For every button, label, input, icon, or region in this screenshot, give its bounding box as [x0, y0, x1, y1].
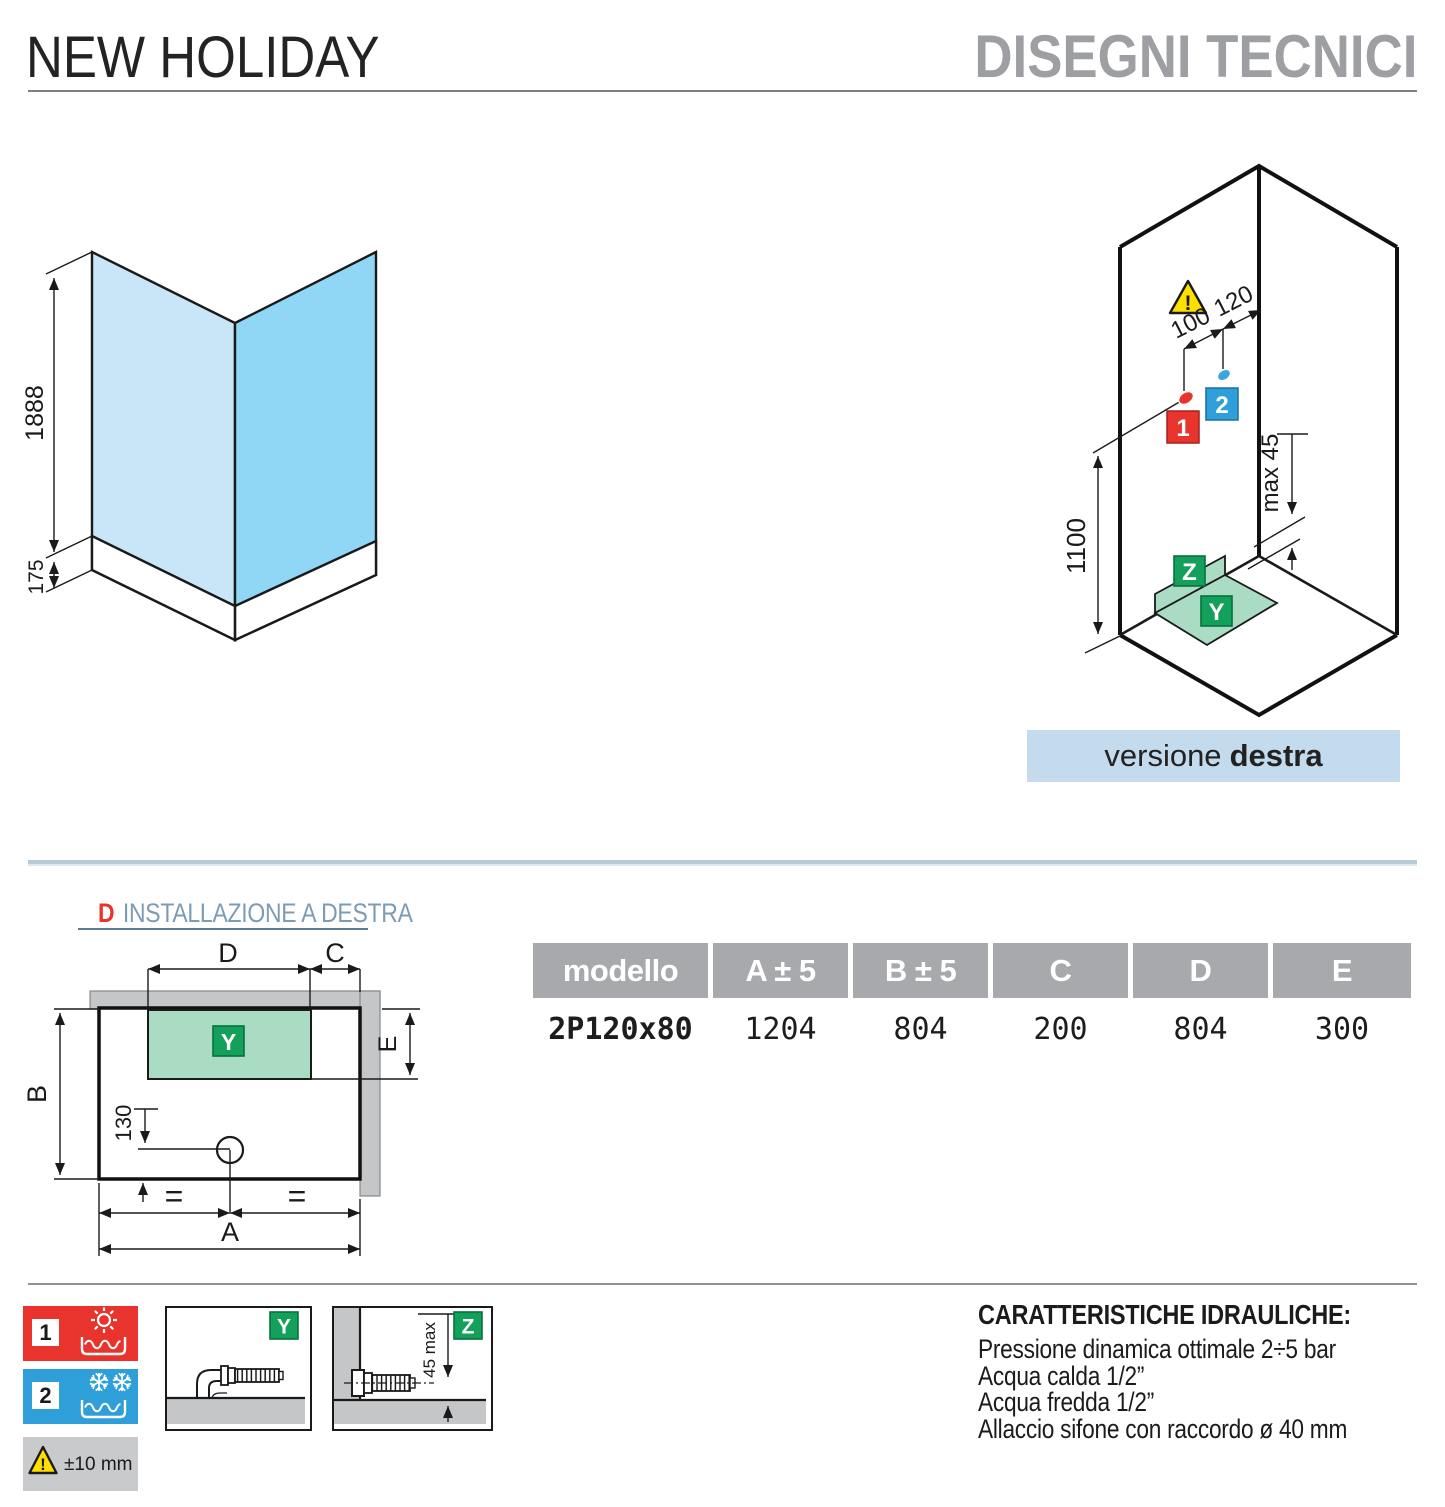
- table-cell-e: 300: [1273, 1011, 1411, 1047]
- detail-box-y: Y: [165, 1306, 312, 1431]
- svg-text:2: 2: [39, 1383, 51, 1408]
- cold-water-basin-icon: [82, 1400, 125, 1417]
- equal-mark-right: =: [288, 1178, 307, 1214]
- glass-panels: [92, 252, 376, 640]
- technical-sheet-page: NEW HOLIDAY DISEGNI TECNICI 1888 175: [0, 0, 1445, 1507]
- corner-glass-drawing: 1888 175: [20, 148, 490, 710]
- svg-text:!: !: [40, 1455, 46, 1474]
- svg-text:2: 2: [1215, 392, 1228, 419]
- dim-label-175: 175: [25, 559, 48, 594]
- dim-label-1888: 1888: [21, 385, 49, 441]
- installation-title-text: INSTALLAZIONE A DESTRA: [123, 898, 413, 928]
- cold-water-dot: [1215, 367, 1232, 383]
- hydraulic-spec-line: Pressione dinamica ottimale 2÷5 bar: [978, 1336, 1445, 1363]
- dim-label-130: 130: [111, 1105, 136, 1142]
- dimension-1888: 1888: [21, 252, 92, 558]
- svg-text:Z: Z: [1182, 559, 1197, 586]
- footer-divider: [28, 1283, 1417, 1285]
- section-title: DISEGNI TECNICI: [974, 22, 1417, 91]
- hydraulic-spec-line: Acqua fredda 1/2”: [978, 1389, 1445, 1416]
- page-title: NEW HOLIDAY: [26, 24, 380, 91]
- table-header-modello: modello: [533, 943, 708, 998]
- isometric-cabin-drawing: ! 100 120 1 2 1100: [1020, 148, 1445, 740]
- drain-badge-group: Z: [1174, 556, 1205, 586]
- table-header-c: C: [993, 943, 1128, 998]
- dim-label-120: 120: [1210, 280, 1258, 322]
- warning-icon-small: !: [30, 1447, 57, 1474]
- hot-water-point: 1: [1093, 389, 1199, 453]
- dim-label-45max: 45 max: [420, 1322, 439, 1378]
- table-cell-b: 804: [853, 1011, 988, 1047]
- legend-tolerance: ! ±10 mm: [23, 1437, 138, 1491]
- table-cell-c: 200: [993, 1011, 1128, 1047]
- floor-band: [167, 1398, 305, 1424]
- installation-title: DINSTALLAZIONE A DESTRA: [98, 898, 413, 929]
- table-cell-d: 804: [1133, 1011, 1268, 1047]
- table-header-b: B ± 5: [853, 943, 988, 998]
- dimensions-table-header: modello A ± 5 B ± 5 C D E: [533, 943, 1413, 998]
- svg-text:Y: Y: [277, 1316, 291, 1339]
- tray-badge-group: Y: [1201, 596, 1232, 626]
- version-variant: destra: [1230, 738, 1323, 774]
- svg-text:1: 1: [39, 1320, 51, 1345]
- dim-label-A: A: [221, 1217, 239, 1247]
- floor-band: [334, 1400, 486, 1424]
- table-cell-model: 2P120x80: [533, 1011, 708, 1047]
- dim-label-D: D: [218, 938, 238, 968]
- detail-box-z: 45 max Z: [332, 1306, 493, 1431]
- legend-hot-water: 1: [23, 1306, 138, 1361]
- svg-text:Z: Z: [462, 1316, 475, 1339]
- dim-label-B: B: [22, 1085, 52, 1103]
- installation-letter: D: [98, 898, 114, 928]
- table-header-a: A ± 5: [713, 943, 848, 998]
- header-divider: [28, 90, 1417, 92]
- cold-water-point: 2: [1206, 367, 1238, 420]
- hot-water-dot: [1176, 389, 1195, 407]
- plan-drawing: Y D C E B 130: [28, 938, 470, 1270]
- version-prefix: versione: [1104, 738, 1221, 774]
- sun-icon: [91, 1308, 117, 1334]
- hydraulic-spec-line: Allaccio sifone con raccordo ø 40 mm: [978, 1416, 1445, 1443]
- snowflake-icons: [90, 1373, 132, 1391]
- table-header-e: E: [1273, 943, 1411, 998]
- flex-hose-icon: [197, 1366, 283, 1398]
- svg-text:Y: Y: [1208, 599, 1224, 626]
- table-cell-a: 1204: [713, 1011, 848, 1047]
- svg-text:1: 1: [1176, 415, 1189, 442]
- y-tag-group: Y: [270, 1312, 298, 1339]
- plan-tray-badge-group: Y: [213, 1026, 244, 1056]
- dim-label-E: E: [374, 1036, 402, 1053]
- dim-label-max45: max 45: [1257, 434, 1284, 513]
- table-header-d: D: [1133, 943, 1268, 998]
- hydraulic-spec-line: Acqua calda 1/2”: [978, 1363, 1445, 1390]
- dimension-B: B: [22, 1009, 99, 1179]
- svg-text:Y: Y: [221, 1029, 236, 1055]
- hot-water-basin-icon: [82, 1337, 125, 1354]
- dimension-175: 175: [25, 559, 92, 594]
- z-tag-group: Z: [454, 1312, 482, 1339]
- dimension-1100: 1100: [1061, 456, 1122, 653]
- hydraulic-specs-title: CARATTERISTICHE IDRAULICHE:: [978, 1299, 1445, 1331]
- legend-cold-water: 2: [23, 1369, 138, 1424]
- dimensions-table-row: 2P120x80 1204 804 200 804 300: [533, 1011, 1413, 1047]
- dim-label-C: C: [325, 938, 345, 968]
- equal-mark-left: =: [165, 1178, 184, 1214]
- tolerance-label: ±10 mm: [64, 1454, 133, 1475]
- dim-label-1100: 1100: [1061, 518, 1091, 574]
- hydraulic-specs: CARATTERISTICHE IDRAULICHE: Pressione di…: [978, 1299, 1445, 1442]
- section-divider: [28, 860, 1417, 866]
- installation-title-underline: [78, 928, 368, 930]
- version-bar: versione destra: [1027, 730, 1400, 782]
